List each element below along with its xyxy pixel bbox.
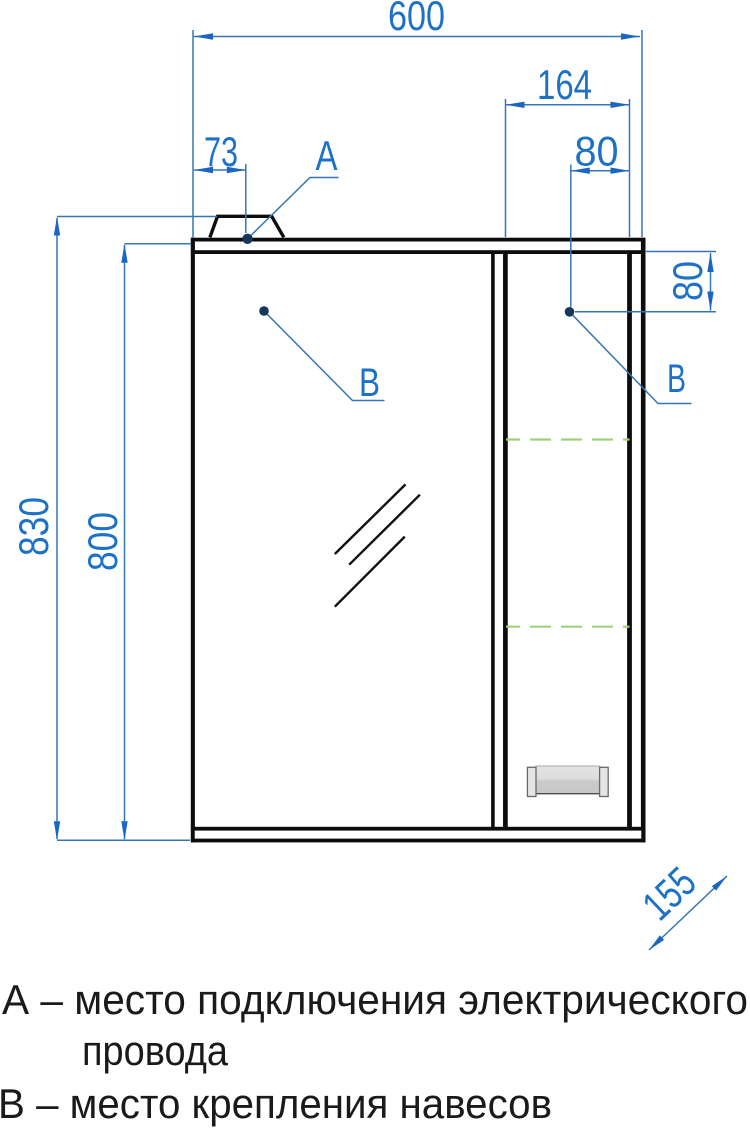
- svg-text:73: 73: [204, 128, 238, 175]
- svg-text:600: 600: [388, 0, 445, 39]
- svg-text:А – место подключения электрич: А – место подключения электрического: [2, 976, 748, 1023]
- svg-text:800: 800: [79, 512, 126, 571]
- svg-text:80: 80: [575, 127, 619, 174]
- svg-text:80: 80: [664, 261, 711, 301]
- svg-text:164: 164: [537, 61, 592, 108]
- svg-text:В – место крепления навесов: В – место крепления навесов: [0, 1080, 552, 1127]
- svg-text:830: 830: [10, 497, 57, 556]
- svg-text:провода: провода: [82, 1027, 229, 1074]
- svg-text:В: В: [667, 357, 686, 401]
- svg-text:155: 155: [633, 858, 705, 929]
- svg-text:В: В: [359, 361, 380, 405]
- svg-text:A: A: [316, 132, 338, 179]
